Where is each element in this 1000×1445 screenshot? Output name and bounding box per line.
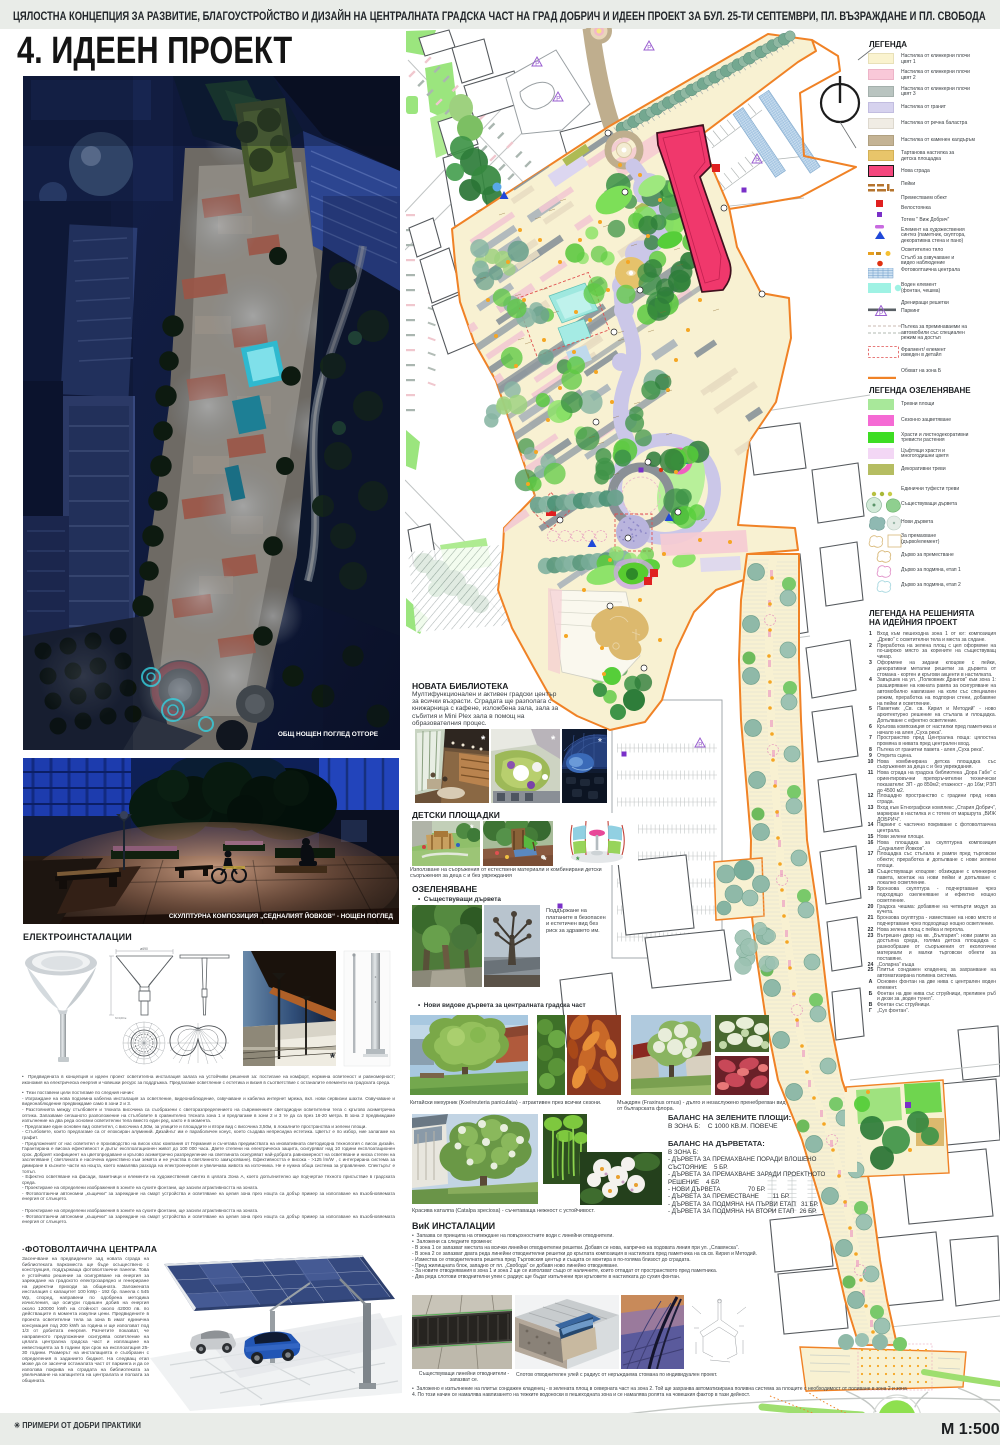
svg-text:ОБЩ НОЩЕН ПОГЛЕД ОТГОРЕ: ОБЩ НОЩЕН ПОГЛЕД ОТГОРЕ (278, 731, 379, 738)
svg-text:P: P (755, 159, 759, 165)
svg-text:ø690: ø690 (140, 947, 148, 951)
svg-text:P: P (535, 62, 539, 68)
svg-text:h=3,00 м: h=3,00 м (115, 1016, 126, 1020)
svg-text:*: * (576, 855, 580, 865)
svg-text:*: * (481, 734, 486, 746)
svg-text:*: * (543, 855, 547, 865)
svg-text:P: P (879, 310, 883, 317)
svg-text:P: P (647, 46, 651, 52)
svg-text:*: * (551, 734, 556, 746)
svg-text:*: * (470, 823, 474, 833)
svg-text:СКУЛПТУРНА КОМПОЗИЦИЯ „СЕДНАЛИ: СКУЛПТУРНА КОМПОЗИЦИЯ „СЕДНАЛИЯТ ЙОВКОВ“… (169, 911, 394, 920)
svg-text:*: * (598, 737, 602, 748)
svg-text:P: P (556, 97, 560, 103)
svg-text:P: P (698, 743, 702, 749)
